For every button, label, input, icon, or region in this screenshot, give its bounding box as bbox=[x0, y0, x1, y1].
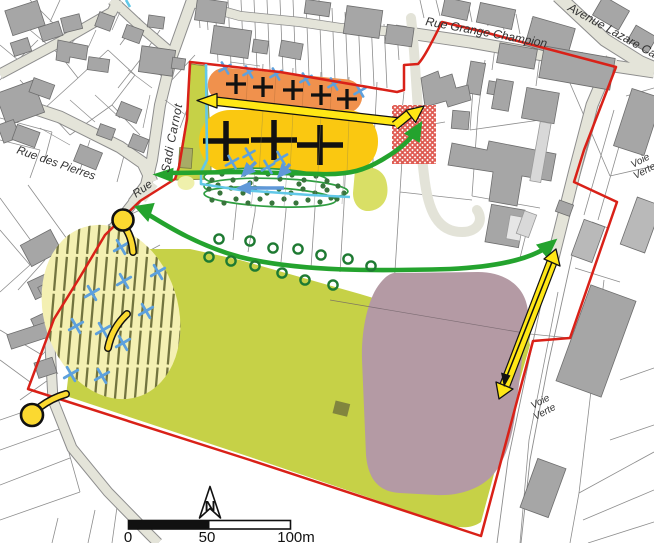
svg-text:0: 0 bbox=[124, 529, 132, 543]
svg-text:100m: 100m bbox=[277, 529, 315, 543]
svg-text:N: N bbox=[205, 498, 216, 515]
svg-text:50: 50 bbox=[199, 529, 216, 543]
